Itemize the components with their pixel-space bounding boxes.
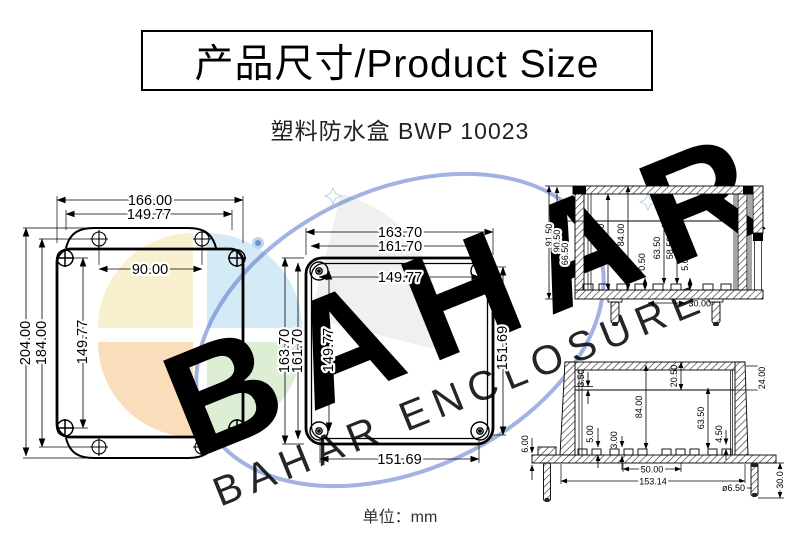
dim-label: 149.77 xyxy=(127,207,171,223)
front-view-drawing: 166.00 149.77 90.00 204.00 184.00 149.77 xyxy=(20,185,260,505)
dim-label: 79.00 xyxy=(596,224,606,247)
dim-label: 161.70 xyxy=(378,239,422,255)
front-view-dimensions: 166.00 149.77 90.00 204.00 184.00 149.77 xyxy=(20,193,243,458)
dim-label: 66.50 xyxy=(560,243,570,266)
dim-label: 151.69 xyxy=(495,326,511,370)
dim-label: 84.00 xyxy=(616,224,626,247)
dim-label: 24.00 xyxy=(757,367,767,390)
page-title: 产品尺寸/Product Size xyxy=(195,33,600,89)
dim-label: 153.14 xyxy=(639,477,667,487)
dim-label: 30.0 xyxy=(775,471,785,489)
dim-label: 5.00 xyxy=(680,253,690,271)
dim-label: 0.50 xyxy=(637,253,647,271)
dim-label: 204.00 xyxy=(20,321,34,365)
pcb-standoffs xyxy=(578,449,731,455)
dim-label: 20.50 xyxy=(669,365,679,388)
dim-label: 4.50 xyxy=(714,425,724,443)
product-subtitle: 塑料防水盒 BWP 10023 xyxy=(0,112,800,146)
dim-label: 90.00 xyxy=(132,262,168,278)
dim-label: 5.00 xyxy=(585,425,595,443)
dim-label: 161.70 xyxy=(290,329,306,373)
dim-label: 151.69 xyxy=(377,452,421,468)
lid-view-drawing: 163.70 161.70 149.77 163.70 161.70 149.7… xyxy=(270,215,520,470)
unit-label: 单位：mm xyxy=(300,503,500,527)
dim-label: 184.00 xyxy=(34,321,50,365)
dim-label: 6.00 xyxy=(520,435,530,453)
dim-label: 63.50 xyxy=(652,237,662,260)
page-header: 产品尺寸/Product Size xyxy=(141,30,653,91)
dim-label: 84.00 xyxy=(634,396,644,419)
dim-label: 149.77 xyxy=(378,270,422,286)
dim-label: 3.00 xyxy=(609,431,619,449)
dim-label: 58.50 xyxy=(665,237,675,260)
front-section-drawing: 3.50 20.50 24.00 84.00 63.50 4.50 5.00 3… xyxy=(518,350,800,528)
dim-label: 50.00 xyxy=(641,465,664,475)
dim-label: 63.50 xyxy=(696,407,706,430)
dim-label: 149.77 xyxy=(75,320,91,364)
side-section-drawing: 91.50 90.50 66.50 79.00 84.00 0.50 63.50… xyxy=(535,178,797,343)
dim-label: ø6.50 xyxy=(722,483,745,493)
dim-label: 30.00 xyxy=(689,299,712,309)
dim-label: 3.50 xyxy=(576,369,586,387)
dim-label: 149.77 xyxy=(321,328,337,372)
pcb-standoffs xyxy=(583,284,731,290)
